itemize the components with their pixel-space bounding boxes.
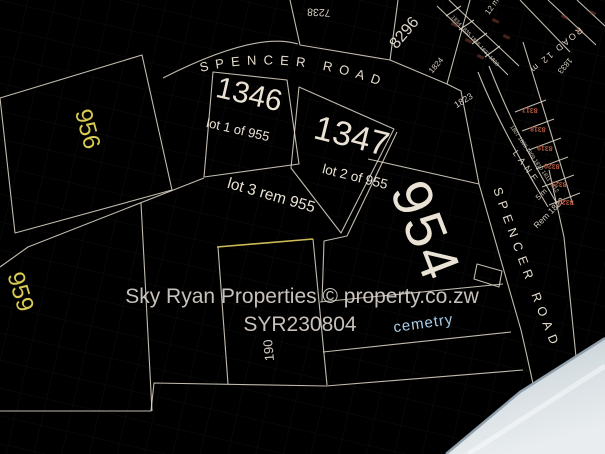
map-photo: SPENCER ROAD SPENCER ROAD 1346 lot 1 of … <box>0 0 605 454</box>
watermark-line2: SYR230804 <box>243 313 357 336</box>
red-lot-number: 8318 <box>530 125 546 133</box>
parcel-7238-number: 7238 <box>307 5 331 18</box>
red-lot-number: 8320 <box>544 162 560 170</box>
red-lot-number: 8317 <box>522 106 538 114</box>
watermark-line1: Sky Ryan Properties © property.co.zw <box>125 285 479 308</box>
plat-map-svg: SPENCER ROAD SPENCER ROAD 1346 lot 1 of … <box>0 0 605 454</box>
red-lot-number: 8321 <box>551 180 567 188</box>
parcel-190-number: 190 <box>260 339 277 362</box>
red-lot-number: 8319 <box>537 144 553 152</box>
red-lot-number: 8322 <box>558 198 574 206</box>
